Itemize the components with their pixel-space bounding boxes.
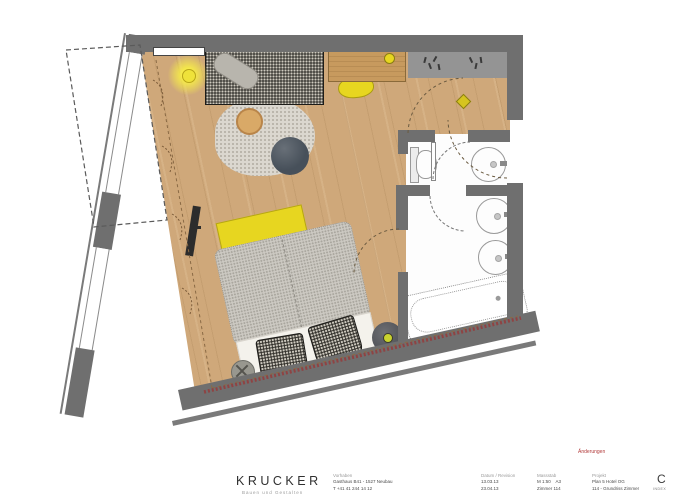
- col-label: Projekt: [592, 472, 639, 479]
- titleblock-col-vorhaben: Vorhaben Gasthaus B41 - 1527 Neubau T +4…: [333, 472, 393, 492]
- vanity-drain-1: [494, 213, 501, 220]
- col-label: Datum / Revision: [481, 472, 515, 479]
- bathroom-wall: [398, 142, 408, 154]
- right-wall: [507, 183, 523, 333]
- wall-shelf: [153, 47, 205, 56]
- firm-logo: KRUCKER: [236, 474, 322, 488]
- window-glazing: [79, 247, 110, 350]
- bathroom-divider-wall: [466, 185, 510, 196]
- titleblock-col-massstab: Massstab M 1:50 A3 Zimmer 114: [537, 472, 561, 492]
- window-wall: [60, 33, 148, 418]
- firm-tagline: Bauen und Gestalten: [242, 490, 303, 495]
- washbasin-drain: [490, 161, 497, 168]
- col-line: Zimmer 114: [537, 486, 561, 493]
- bathroom-wall: [398, 130, 435, 142]
- col-line: Gasthaus B41 - 1527 Neubau: [333, 479, 393, 486]
- tv-bracket: [196, 226, 201, 229]
- revision-index-sub: INDEX: [653, 487, 666, 491]
- titleblock-col-projekt: Projekt Plan 5 Hotel OG 114 - Grundriss …: [592, 472, 639, 492]
- bathroom-wall: [468, 130, 510, 142]
- pouf: [271, 137, 309, 175]
- desk: [328, 50, 406, 82]
- col-line: T +41 41 244 14 12: [333, 486, 393, 493]
- wardrobe: [408, 50, 507, 78]
- col-line: M 1:50 A3: [537, 479, 561, 486]
- desk-lamp: [384, 53, 395, 64]
- window-glazing: [105, 52, 142, 194]
- bathroom-wall: [398, 272, 408, 342]
- round-side-table: [236, 108, 263, 135]
- vanity-drain-2: [495, 255, 502, 262]
- col-line: 114 - Grundriss Zimmer: [592, 486, 639, 493]
- bathroom-wall: [396, 185, 408, 230]
- washbasin-tap: [500, 161, 507, 166]
- title-block: Änderungen KRUCKER Bauen und Gestalten V…: [0, 446, 700, 500]
- col-label: Massstab: [537, 472, 561, 479]
- bathroom-divider-wall: [408, 185, 430, 196]
- col-line: 23.04.13: [481, 486, 515, 493]
- right-wall: [507, 35, 523, 120]
- titleblock-col-datum: Datum / Revision 13.03.13 23.04.13: [481, 472, 515, 492]
- col-label: Vorhaben: [333, 472, 393, 479]
- revision-note: Änderungen: [578, 449, 605, 455]
- wc-door-leaf: [431, 142, 436, 181]
- revision-index-letter: C: [657, 472, 666, 486]
- floor-plan-sheet: Änderungen KRUCKER Bauen und Gestalten V…: [0, 0, 700, 500]
- ceiling-lamp: [182, 69, 196, 83]
